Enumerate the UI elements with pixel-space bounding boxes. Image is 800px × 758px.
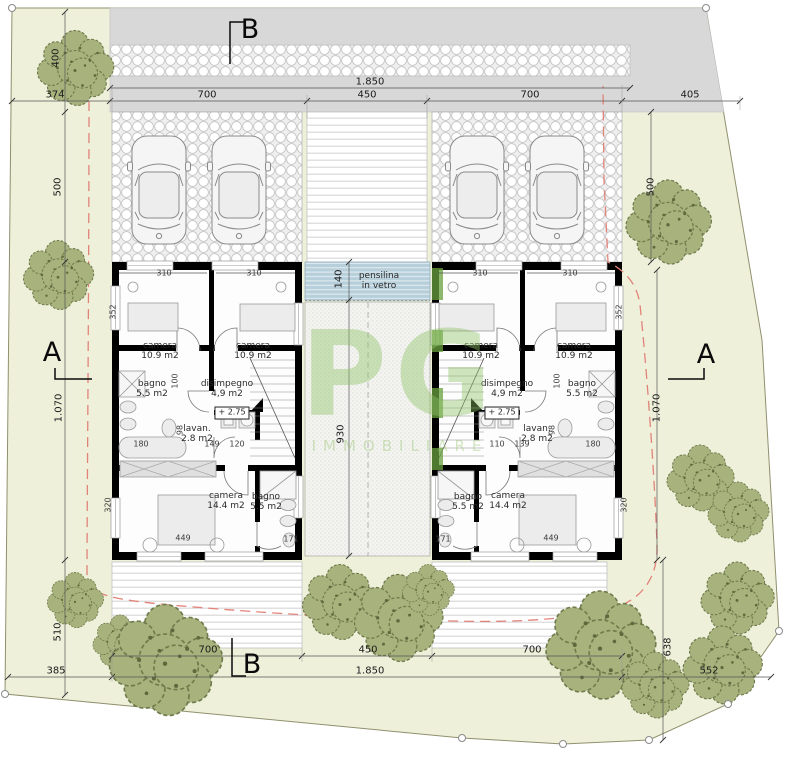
watermark-logo: PG [300, 305, 499, 443]
glass-canopy [305, 262, 430, 300]
car [208, 136, 271, 244]
sidewalk [110, 45, 630, 76]
car [446, 136, 509, 244]
car [128, 136, 191, 244]
housing-unit-left [111, 261, 303, 561]
site-plan: PG IMMOBILIARE BBAA1.8507004507004053744… [0, 0, 800, 758]
car [526, 136, 589, 244]
driveway [307, 112, 427, 262]
watermark-subtext: IMMOBILIARE [312, 437, 489, 455]
